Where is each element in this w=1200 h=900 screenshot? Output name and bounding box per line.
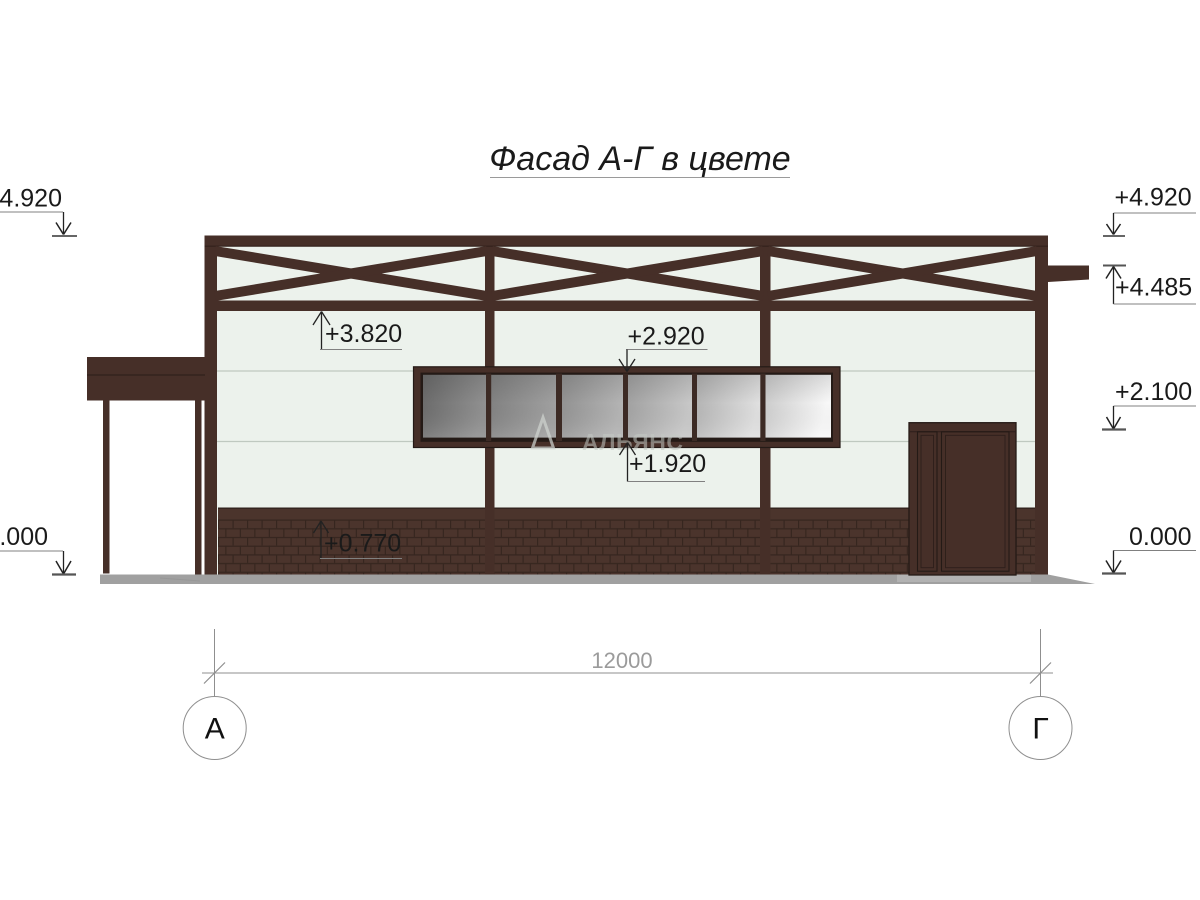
svg-text:+3.820: +3.820 [325,320,402,348]
svg-text:А: А [205,713,225,746]
svg-text:+4.920: +4.920 [1115,184,1192,212]
svg-text:+2.100: +2.100 [1115,378,1192,406]
svg-text:0.000: 0.000 [0,523,48,551]
svg-text:+4.920: +4.920 [0,185,62,213]
svg-text:+1.920: +1.920 [629,450,706,478]
svg-text:+4.485: +4.485 [1115,274,1192,302]
svg-text:+2.920: +2.920 [628,323,705,351]
svg-text:0.000: 0.000 [1129,523,1192,551]
svg-text:12000: 12000 [591,648,652,673]
svg-text:Фасад А-Г в цвете: Фасад А-Г в цвете [489,140,790,178]
svg-text:+0.770: +0.770 [324,530,401,558]
svg-text:Г: Г [1032,713,1048,746]
